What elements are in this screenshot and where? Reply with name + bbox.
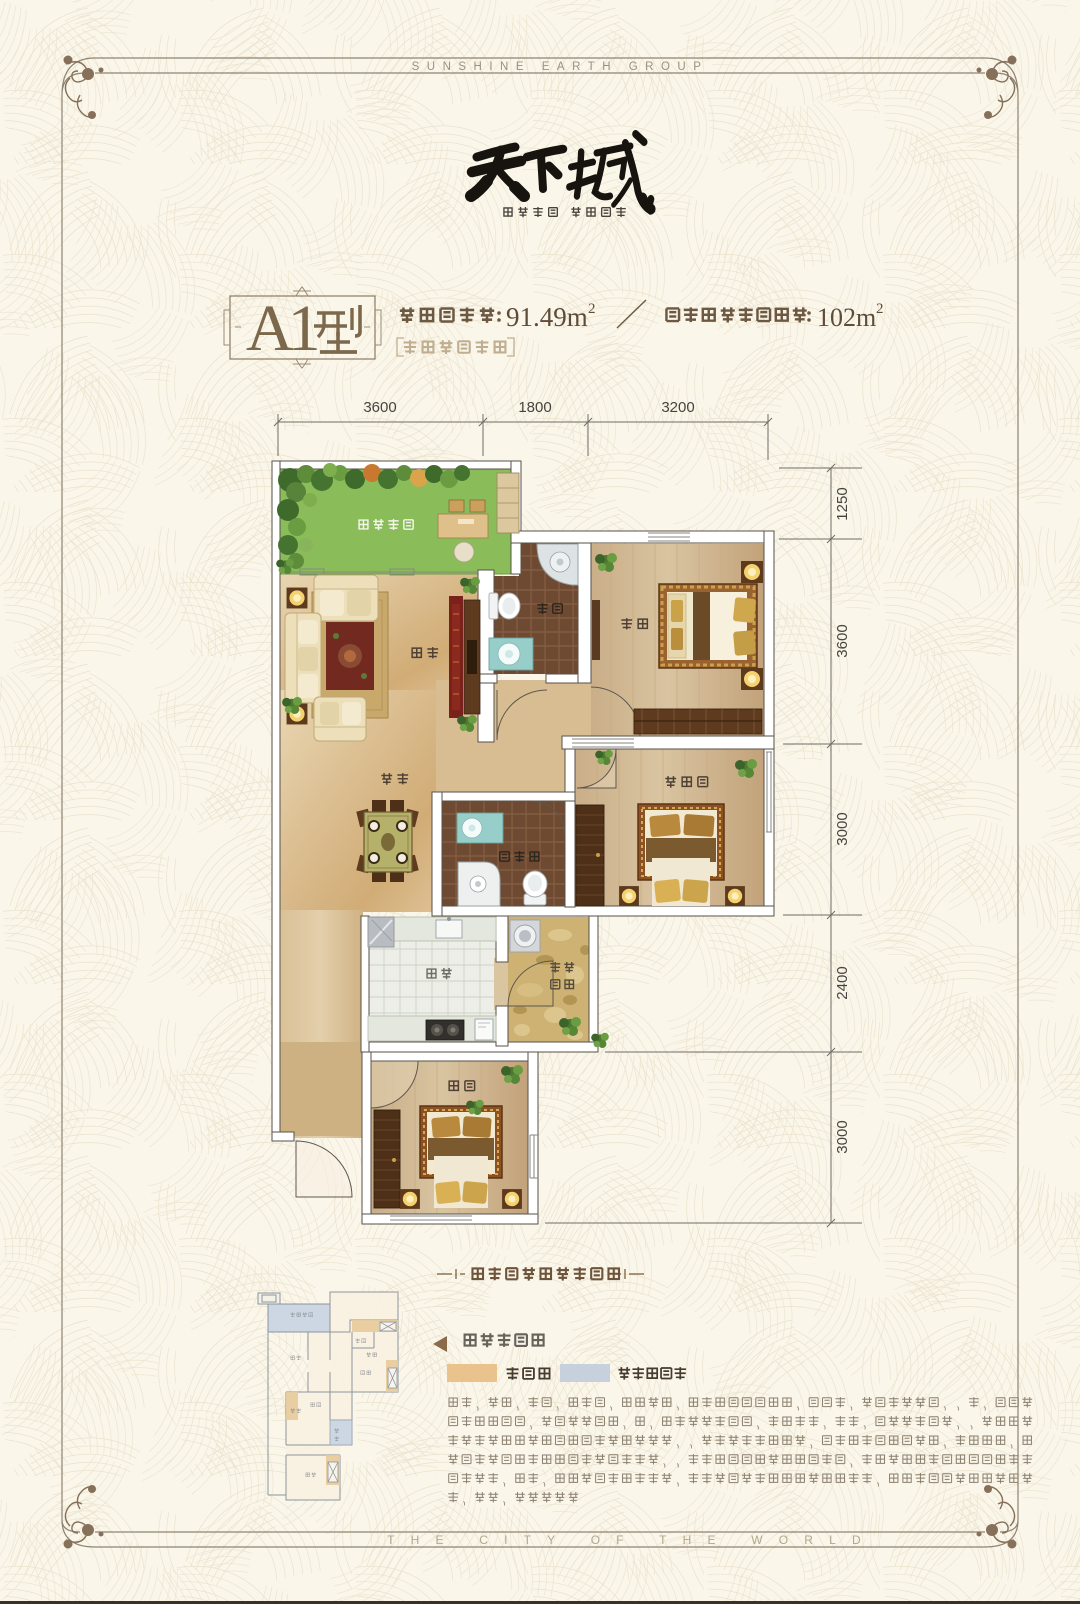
svg-text:102m: 102m (817, 303, 876, 332)
svg-text:3000: 3000 (834, 1120, 851, 1153)
svg-text:THE CITY OF THE WORLD: THE CITY OF THE WORLD (387, 1533, 877, 1547)
svg-text:1250: 1250 (834, 487, 851, 520)
svg-text:1800: 1800 (518, 399, 551, 416)
svg-text:2: 2 (588, 301, 596, 317)
svg-text:3600: 3600 (363, 399, 396, 416)
svg-text:2400: 2400 (834, 966, 851, 999)
svg-text:3200: 3200 (661, 399, 694, 416)
svg-text:3600: 3600 (834, 624, 851, 657)
svg-text:3000: 3000 (834, 812, 851, 845)
svg-text:2: 2 (876, 301, 884, 317)
svg-text:91.49m: 91.49m (506, 302, 588, 332)
svg-text:A1: A1 (246, 292, 318, 365)
svg-text:SUNSHINE EARTH GROUP: SUNSHINE EARTH GROUP (412, 61, 709, 73)
